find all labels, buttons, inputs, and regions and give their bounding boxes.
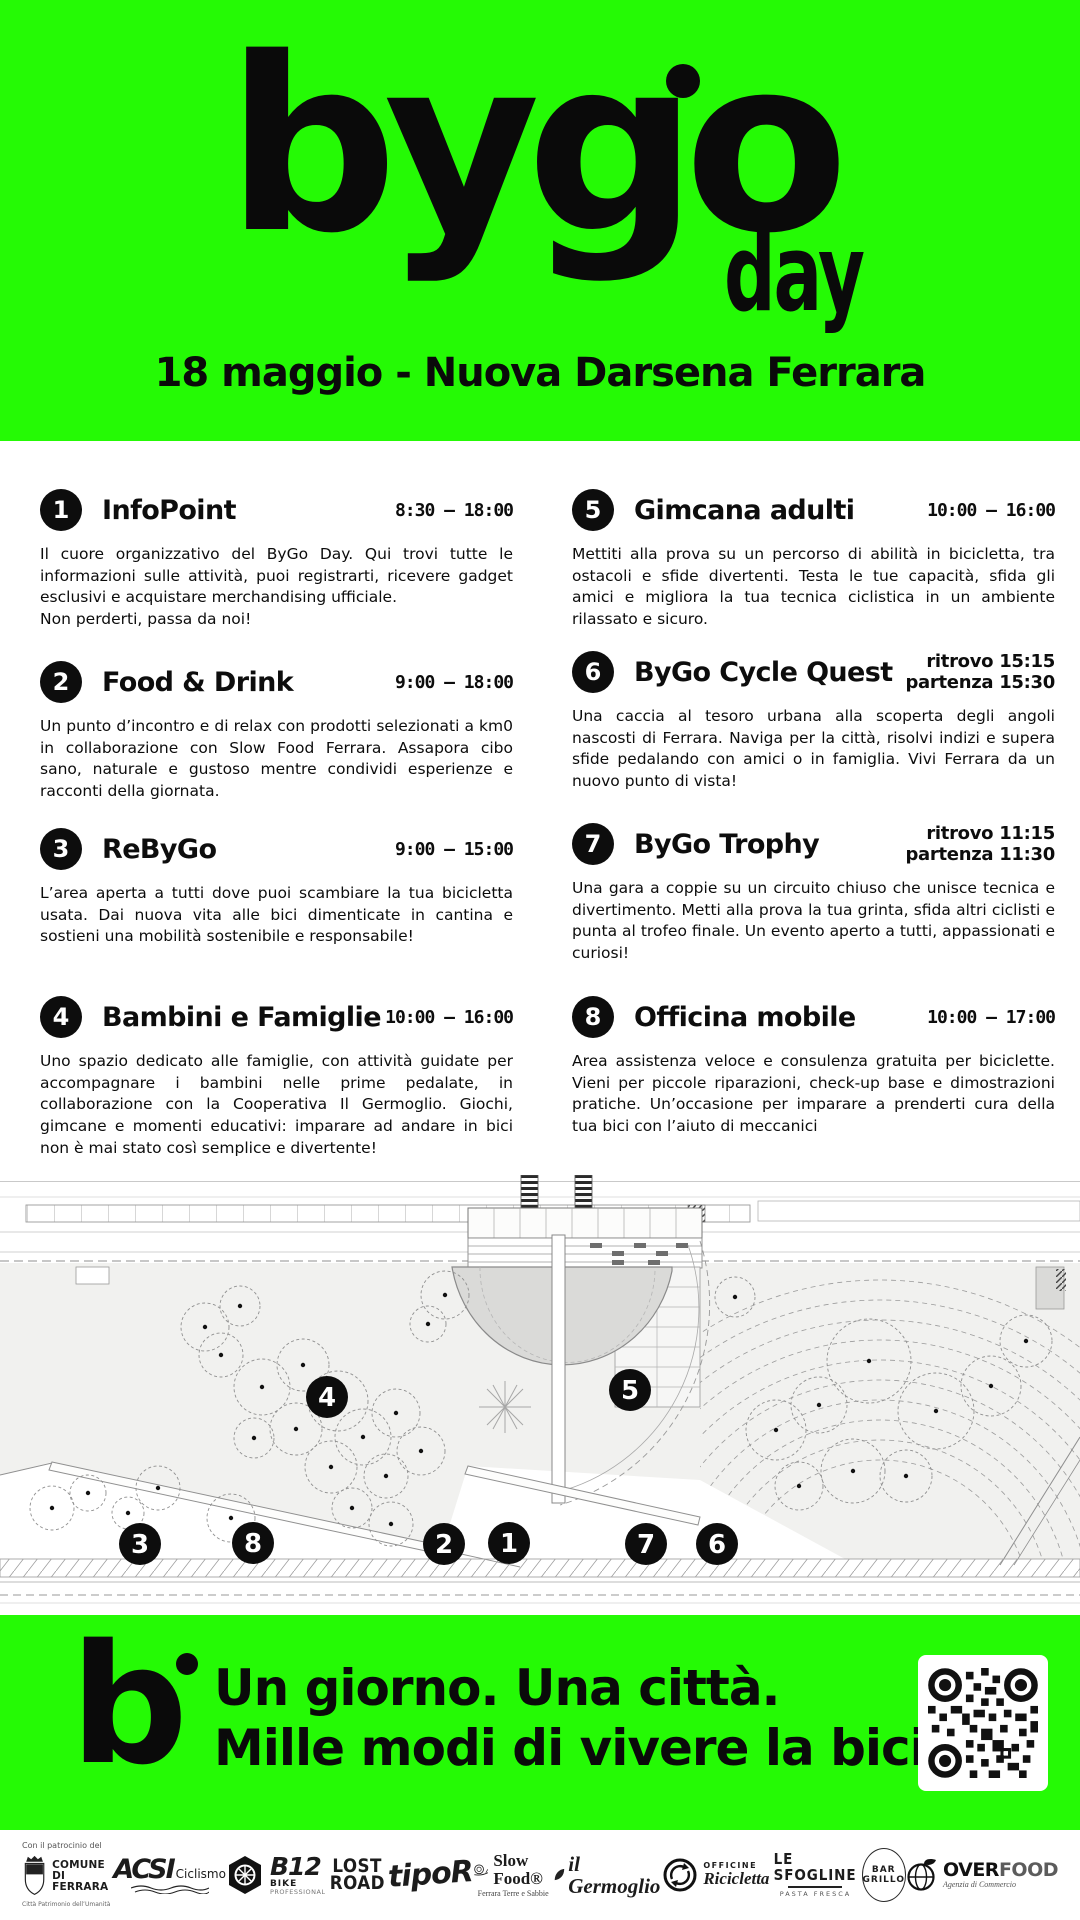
event-infopoint: 1 InfoPoint 8:30 – 18:00 Il cuore organi…	[40, 489, 513, 631]
event-bygo-trophy: 7 ByGo Trophy ritrovo 11:15 partenza 11:…	[572, 823, 1055, 965]
event-description: Una caccia al tesoro urbana alla scopert…	[572, 706, 1055, 793]
svg-text:4: 4	[318, 1383, 336, 1413]
event-time: 10:00 – 16:00	[385, 1007, 513, 1028]
event-header: 3 ReByGo 9:00 – 15:00	[40, 828, 513, 870]
footer-banner: b Un giorno. Una città. Mille modi di vi…	[0, 1615, 1080, 1830]
site-plan-map: 1 2 3 4 5 6 7 8	[0, 1175, 1080, 1615]
event-header: 4 Bambini e Famiglie 10:00 – 16:00	[40, 996, 513, 1038]
event-number-badge: 7	[572, 823, 614, 865]
leaf-icon	[553, 1867, 565, 1883]
tagline-line-1: Un giorno. Una città.	[214, 1659, 780, 1717]
sfogline-wordmark: LE SFOGLINE	[774, 1852, 857, 1884]
event-title: Bambini e Famiglie	[102, 1002, 381, 1033]
event-title: InfoPoint	[102, 495, 236, 526]
event-title: ReByGo	[102, 834, 216, 865]
germoglio-wordmark: il Germoglio	[568, 1853, 662, 1897]
sfogline-divider	[788, 1886, 842, 1888]
event-time-start: partenza 15:30	[905, 672, 1055, 693]
comune-name-line2: DI FERRARA	[52, 1871, 113, 1893]
svg-text:1: 1	[500, 1529, 518, 1559]
overfood-sub: Agenzia di Commercio	[943, 1881, 1058, 1889]
event-title: ByGo Trophy	[634, 829, 819, 860]
event-number-badge: 5	[572, 489, 614, 531]
qr-code	[918, 1655, 1048, 1791]
map-marker-5: 5	[609, 1369, 651, 1411]
svg-text:2: 2	[435, 1530, 453, 1560]
sponsor-le-sfogline: LE SFOGLINE PASTA FRESCA	[769, 1852, 861, 1898]
bygo-mark-dot-icon	[176, 1653, 198, 1675]
comune-crest-icon	[22, 1852, 47, 1900]
event-header: 2 Food & Drink 9:00 – 18:00	[40, 661, 513, 703]
event-header: 5 Gimcana adulti 10:00 – 16:00	[572, 489, 1055, 531]
site-plan-drawing: 1 2 3 4 5 6 7 8	[0, 1175, 1080, 1615]
ricicletta-icon	[662, 1857, 698, 1893]
event-number-badge: 1	[40, 489, 82, 531]
events-section: 1 InfoPoint 8:30 – 18:00 Il cuore organi…	[0, 441, 1080, 1175]
event-time: ritrovo 11:15 partenza 11:30	[905, 823, 1055, 865]
event-time-start: partenza 11:30	[905, 844, 1055, 865]
svg-text:7: 7	[637, 1530, 655, 1560]
sponsor-lost-road: LOST ROAD	[326, 1858, 389, 1892]
event-description: Mettiti alla prova su un percorso di abi…	[572, 544, 1055, 631]
b12-wheel-icon	[226, 1855, 264, 1895]
grillo-line2: GRILLO	[863, 1875, 905, 1885]
tagline-line-2: Mille modi di vivere la bici.	[214, 1719, 944, 1777]
event-title: Gimcana adulti	[634, 495, 854, 526]
event-header: 8 Officina mobile 10:00 – 17:00	[572, 996, 1055, 1038]
event-header: 7 ByGo Trophy ritrovo 11:15 partenza 11:…	[572, 823, 1055, 865]
poster: bygo day 18 maggio - Nuova Darsena Ferra…	[0, 0, 1080, 1920]
sponsor-comune-di-ferrara: Con il patrocinio del COMUNE DI FERRARA …	[22, 1842, 113, 1909]
event-time-meeting: ritrovo 11:15	[905, 823, 1055, 844]
lostroad-line2: ROAD	[329, 1875, 384, 1892]
sponsor-tipor: tipoR	[388, 1859, 473, 1891]
event-number-badge: 8	[572, 996, 614, 1038]
sponsor-overfood: OVER FOOD Agenzia di Commercio	[906, 1858, 1058, 1892]
event-food-drink: 2 Food & Drink 9:00 – 18:00 Un punto d’i…	[40, 661, 513, 803]
event-title: Food & Drink	[102, 667, 293, 698]
food-wordmark: FOOD	[999, 1861, 1058, 1881]
bygo-logo-dot-icon	[666, 64, 700, 98]
event-date-location: 18 maggio - Nuova Darsena Ferrara	[0, 350, 1080, 396]
header-banner: bygo day 18 maggio - Nuova Darsena Ferra…	[0, 0, 1080, 441]
event-officina-mobile: 8 Officina mobile 10:00 – 17:00 Area ass…	[572, 996, 1055, 1138]
map-marker-1: 1	[488, 1522, 530, 1564]
ricicletta-wordmark: Ricicletta	[703, 1870, 769, 1888]
event-number-badge: 3	[40, 828, 82, 870]
event-title: Officina mobile	[634, 1002, 856, 1033]
event-description: Area assistenza veloce e consulenza grat…	[572, 1051, 1055, 1138]
event-number-badge: 2	[40, 661, 82, 703]
acsi-wordmark: ACSI	[113, 1856, 173, 1884]
tipor-wordmark: tipoR	[387, 1856, 474, 1893]
grillo-line1: BAR	[872, 1865, 896, 1875]
map-marker-6: 6	[696, 1523, 738, 1565]
sponsor-slow-food: Slow Food® Ferrara Terre e Sabbie	[473, 1852, 553, 1898]
svg-text:8: 8	[244, 1529, 262, 1559]
snail-icon	[473, 1861, 489, 1879]
sponsor-bar-grillo: BAR GRILLO	[862, 1848, 906, 1902]
acsi-sub: Ciclismo	[176, 1868, 226, 1881]
sponsor-il-germoglio: il Germoglio	[553, 1853, 662, 1897]
comune-subtitle: Città Patrimonio dell’Umanità	[22, 1902, 110, 1908]
sponsor-acsi-ciclismo: ACSI Ciclismo	[113, 1856, 226, 1894]
event-title: ByGo Cycle Quest	[634, 657, 893, 688]
event-gimcana-adulti: 5 Gimcana adulti 10:00 – 16:00 Mettiti a…	[572, 489, 1055, 631]
event-description: Un punto d’incontro e di relax con prodo…	[40, 716, 513, 803]
event-time: 9:00 – 18:00	[395, 672, 513, 693]
event-time: 9:00 – 15:00	[395, 839, 513, 860]
svg-text:6: 6	[708, 1530, 726, 1560]
event-description: Uno spazio dedicato alle famiglie, con a…	[40, 1051, 513, 1160]
acsi-wave-icon	[131, 1884, 209, 1894]
event-time-meeting: ritrovo 15:15	[905, 651, 1055, 672]
svg-text:5: 5	[621, 1376, 639, 1406]
slowfood-wordmark: Slow Food®	[493, 1852, 553, 1888]
event-description-note: Non perderti, passa da noi!	[40, 609, 513, 631]
event-header: 6 ByGo Cycle Quest ritrovo 15:15 partenz…	[572, 651, 1055, 693]
sfogline-sub: PASTA FRESCA	[780, 1891, 852, 1898]
bygo-logo-day: day	[724, 224, 863, 324]
svg-text:3: 3	[131, 1530, 149, 1560]
event-time: ritrovo 15:15 partenza 15:30	[905, 651, 1055, 693]
event-number-badge: 6	[572, 651, 614, 693]
slowfood-sub: Ferrara Terre e Sabbie	[478, 1890, 549, 1898]
event-time: 8:30 – 18:00	[395, 500, 513, 521]
map-marker-3: 3	[119, 1523, 161, 1565]
map-marker-8: 8	[232, 1522, 274, 1564]
event-rebygo: 3 ReByGo 9:00 – 15:00 L’area aperta a tu…	[40, 828, 513, 948]
bygo-mark: b	[70, 1623, 188, 1788]
event-description: Il cuore organizzativo del ByGo Day. Qui…	[40, 544, 513, 609]
event-number-badge: 4	[40, 996, 82, 1038]
overfood-globe-icon	[906, 1858, 938, 1892]
sponsor-strip: Con il patrocinio del COMUNE DI FERRARA …	[0, 1830, 1080, 1920]
event-header: 1 InfoPoint 8:30 – 18:00	[40, 489, 513, 531]
qr-pattern	[928, 1666, 1038, 1780]
map-marker-2: 2	[423, 1523, 465, 1565]
event-cycle-quest: 6 ByGo Cycle Quest ritrovo 15:15 partenz…	[572, 651, 1055, 793]
event-time: 10:00 – 16:00	[927, 500, 1055, 521]
comune-name-line1: COMUNE	[52, 1860, 113, 1871]
map-marker-4: 4	[306, 1376, 348, 1418]
sponsor-b12-bike: B12 BIKE PROFESSIONAL	[226, 1854, 326, 1897]
event-description: L’area aperta a tutti dove puoi scambiar…	[40, 883, 513, 948]
patronage-label: Con il patrocinio del	[22, 1842, 102, 1850]
event-description: Una gara a coppie su un circuito chiuso …	[572, 878, 1055, 965]
b12-sub2: PROFESSIONAL	[270, 1889, 326, 1896]
b12-wordmark: B12	[270, 1854, 326, 1880]
event-time: 10:00 – 17:00	[927, 1007, 1055, 1028]
map-marker-7: 7	[625, 1523, 667, 1565]
event-bambini-famiglie: 4 Bambini e Famiglie 10:00 – 16:00 Uno s…	[40, 996, 513, 1160]
sponsor-officine-ricicletta: OFFICINE Ricicletta	[662, 1857, 769, 1893]
over-wordmark: OVER	[943, 1861, 999, 1881]
